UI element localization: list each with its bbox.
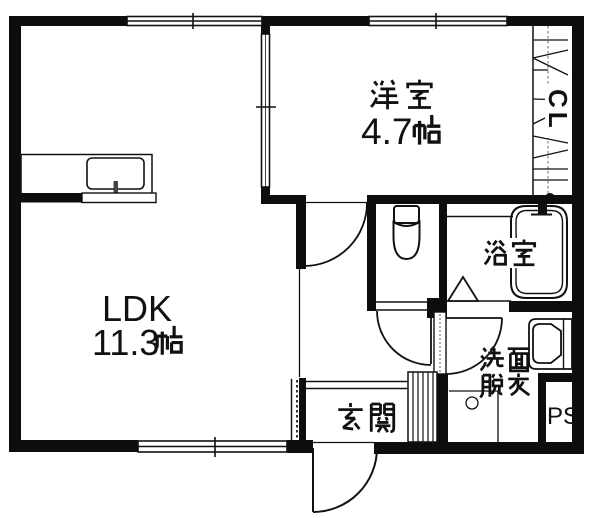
svg-text:11.3: 11.3: [92, 322, 159, 363]
svg-text:4.7: 4.7: [361, 111, 412, 152]
svg-text:CL: CL: [543, 89, 573, 132]
svg-text:PS: PS: [547, 403, 579, 430]
